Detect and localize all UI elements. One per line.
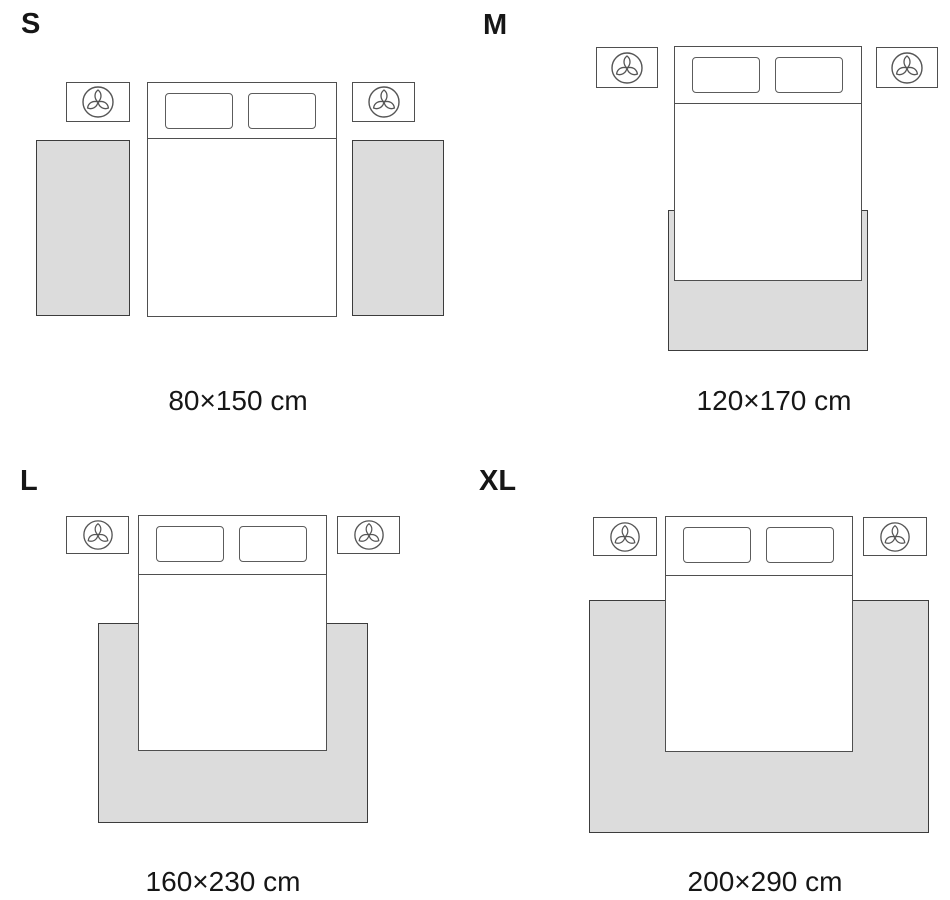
bed: [665, 516, 853, 752]
plant-icon: [81, 519, 115, 551]
size-dimensions-label: 200×290 cm: [615, 868, 915, 896]
pillow: [156, 526, 224, 562]
nightstand: [863, 517, 927, 556]
bed: [674, 46, 862, 281]
pillow: [248, 93, 316, 129]
plant-icon: [80, 85, 116, 119]
size-dimensions-label: 80×150 cm: [88, 387, 388, 415]
bed: [138, 515, 327, 751]
bed: [147, 82, 337, 317]
nightstand: [876, 47, 938, 88]
plant-icon: [878, 521, 912, 553]
size-option-m: M: [475, 0, 950, 450]
rug-size-guide: S: [0, 0, 950, 900]
size-option-xl: XL: [475, 450, 950, 900]
pillow: [775, 57, 843, 93]
bed-headboard: [675, 47, 861, 104]
plant-icon: [352, 519, 386, 551]
nightstand: [66, 516, 129, 554]
nightstand: [593, 517, 657, 556]
pillow: [766, 527, 834, 563]
size-label: L: [20, 467, 38, 496]
rug: [36, 140, 130, 316]
nightstand: [337, 516, 400, 554]
plant-icon: [609, 51, 645, 85]
size-dimensions-label: 120×170 cm: [624, 387, 924, 415]
size-label: M: [483, 11, 507, 40]
bed-headboard: [148, 83, 336, 139]
size-dimensions-label: 160×230 cm: [73, 868, 373, 896]
nightstand: [352, 82, 415, 122]
plant-icon: [608, 521, 642, 553]
nightstand: [596, 47, 658, 88]
bed-headboard: [139, 516, 326, 575]
pillow: [239, 526, 307, 562]
size-label: XL: [479, 467, 516, 496]
pillow: [165, 93, 233, 129]
bed-headboard: [666, 517, 852, 576]
nightstand: [66, 82, 130, 122]
pillow: [683, 527, 751, 563]
plant-icon: [366, 85, 402, 119]
pillow: [692, 57, 760, 93]
rug: [352, 140, 444, 316]
size-option-l: L: [0, 450, 475, 900]
size-option-s: S: [0, 0, 475, 450]
size-label: S: [21, 10, 40, 39]
plant-icon: [889, 51, 925, 85]
